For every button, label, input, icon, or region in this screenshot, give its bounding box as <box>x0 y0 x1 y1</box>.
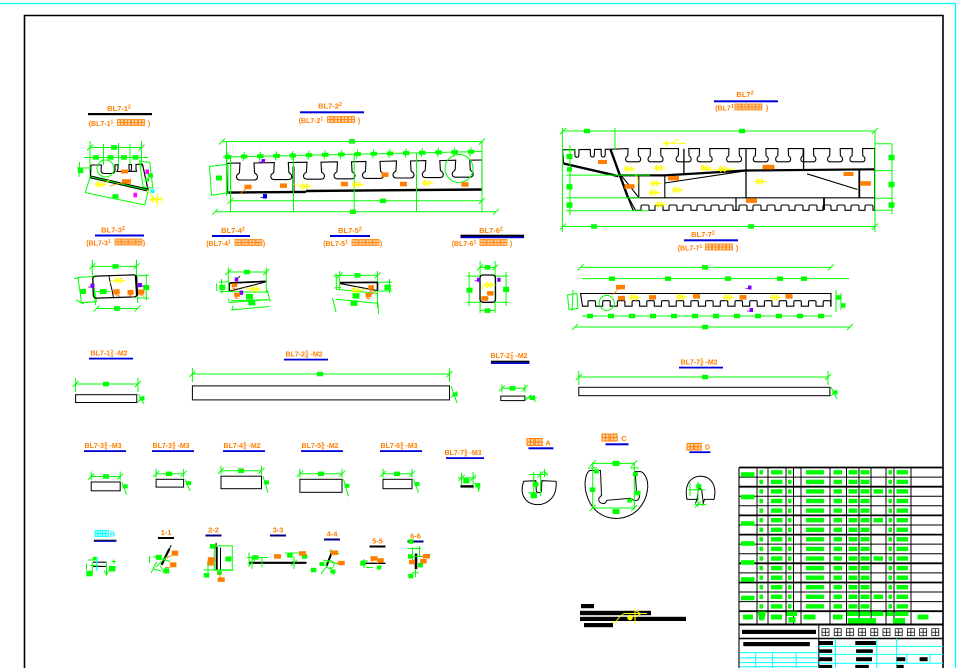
svg-text:): ) <box>263 241 265 248</box>
svg-text:-M2: -M2 <box>706 360 718 367</box>
svg-text:): ) <box>148 121 150 128</box>
svg-text:-M2: -M2 <box>249 443 261 450</box>
svg-text:(BL7-11: (BL7-11 <box>89 120 114 129</box>
svg-text:4-4: 4-4 <box>327 530 339 539</box>
svg-text:8: 8 <box>322 446 325 451</box>
svg-text:-M3: -M3 <box>110 443 122 450</box>
svg-text:C: C <box>621 434 627 443</box>
svg-text:BL7-62: BL7-62 <box>479 226 503 235</box>
svg-text:BL7-3: BL7-3 <box>85 443 105 450</box>
svg-text:8: 8 <box>401 446 404 451</box>
svg-text:): ) <box>736 246 738 253</box>
svg-text:4: 4 <box>111 353 114 358</box>
svg-text:8: 8 <box>306 354 309 359</box>
svg-text:): ) <box>358 118 360 125</box>
svg-text:BL7-72: BL7-72 <box>691 230 715 239</box>
svg-text:): ) <box>380 241 382 248</box>
svg-text:(BL7-71: (BL7-71 <box>678 244 703 253</box>
svg-text:(BL7-21: (BL7-21 <box>299 117 324 126</box>
svg-text:BL7-6: BL7-6 <box>381 443 401 450</box>
svg-text:): ) <box>766 106 768 113</box>
svg-text:BL7-3: BL7-3 <box>153 443 173 450</box>
svg-text:BL7-2: BL7-2 <box>286 352 306 359</box>
svg-text:BL7-7: BL7-7 <box>445 450 465 457</box>
svg-text:(BL7-31: (BL7-31 <box>86 239 111 248</box>
svg-text:(BL7: (BL7 <box>715 106 731 113</box>
svg-text:-M2: -M2 <box>327 443 339 450</box>
svg-text:BL7-7: BL7-7 <box>681 360 701 367</box>
svg-text:(BL7-51: (BL7-51 <box>323 240 348 249</box>
svg-text:3-3: 3-3 <box>273 526 284 535</box>
svg-text:-M3: -M3 <box>470 450 482 457</box>
svg-text:BL7-4: BL7-4 <box>224 443 244 450</box>
svg-text:B: B <box>110 531 115 538</box>
svg-text:A: A <box>545 439 551 448</box>
svg-text:-M2: -M2 <box>116 351 128 358</box>
svg-text:5-5: 5-5 <box>372 537 383 546</box>
svg-text:-M3: -M3 <box>406 443 418 450</box>
svg-text:BL7-2: BL7-2 <box>491 353 511 360</box>
svg-text:8: 8 <box>465 453 468 458</box>
svg-text:D: D <box>705 445 710 452</box>
svg-text:1-1: 1-1 <box>161 528 172 537</box>
svg-text:8: 8 <box>105 446 108 451</box>
svg-text:BL7-5: BL7-5 <box>302 443 322 450</box>
svg-text:BL7-1: BL7-1 <box>91 351 111 358</box>
svg-text:): ) <box>143 241 145 248</box>
svg-text:8: 8 <box>701 362 704 367</box>
svg-text:BL7-12: BL7-12 <box>107 104 131 113</box>
svg-text:BL7-32: BL7-32 <box>101 226 125 235</box>
svg-text:-M2: -M2 <box>516 353 528 360</box>
svg-text:8: 8 <box>173 446 176 451</box>
svg-text:(BL7-61: (BL7-61 <box>452 240 477 249</box>
svg-text:BL7-22: BL7-22 <box>318 102 342 111</box>
svg-text:6-6: 6-6 <box>410 532 421 541</box>
svg-text:BL7-42: BL7-42 <box>221 226 245 235</box>
svg-text:-M2: -M2 <box>311 352 323 359</box>
svg-text:8: 8 <box>244 446 247 451</box>
svg-text:-M3: -M3 <box>178 443 190 450</box>
svg-text:(BL7-41: (BL7-41 <box>206 240 231 249</box>
svg-text:2-2: 2-2 <box>208 526 219 535</box>
svg-text:1: 1 <box>731 104 734 110</box>
svg-text:): ) <box>510 241 512 248</box>
svg-text:BL7-52: BL7-52 <box>338 226 362 235</box>
svg-text:8: 8 <box>511 356 514 361</box>
